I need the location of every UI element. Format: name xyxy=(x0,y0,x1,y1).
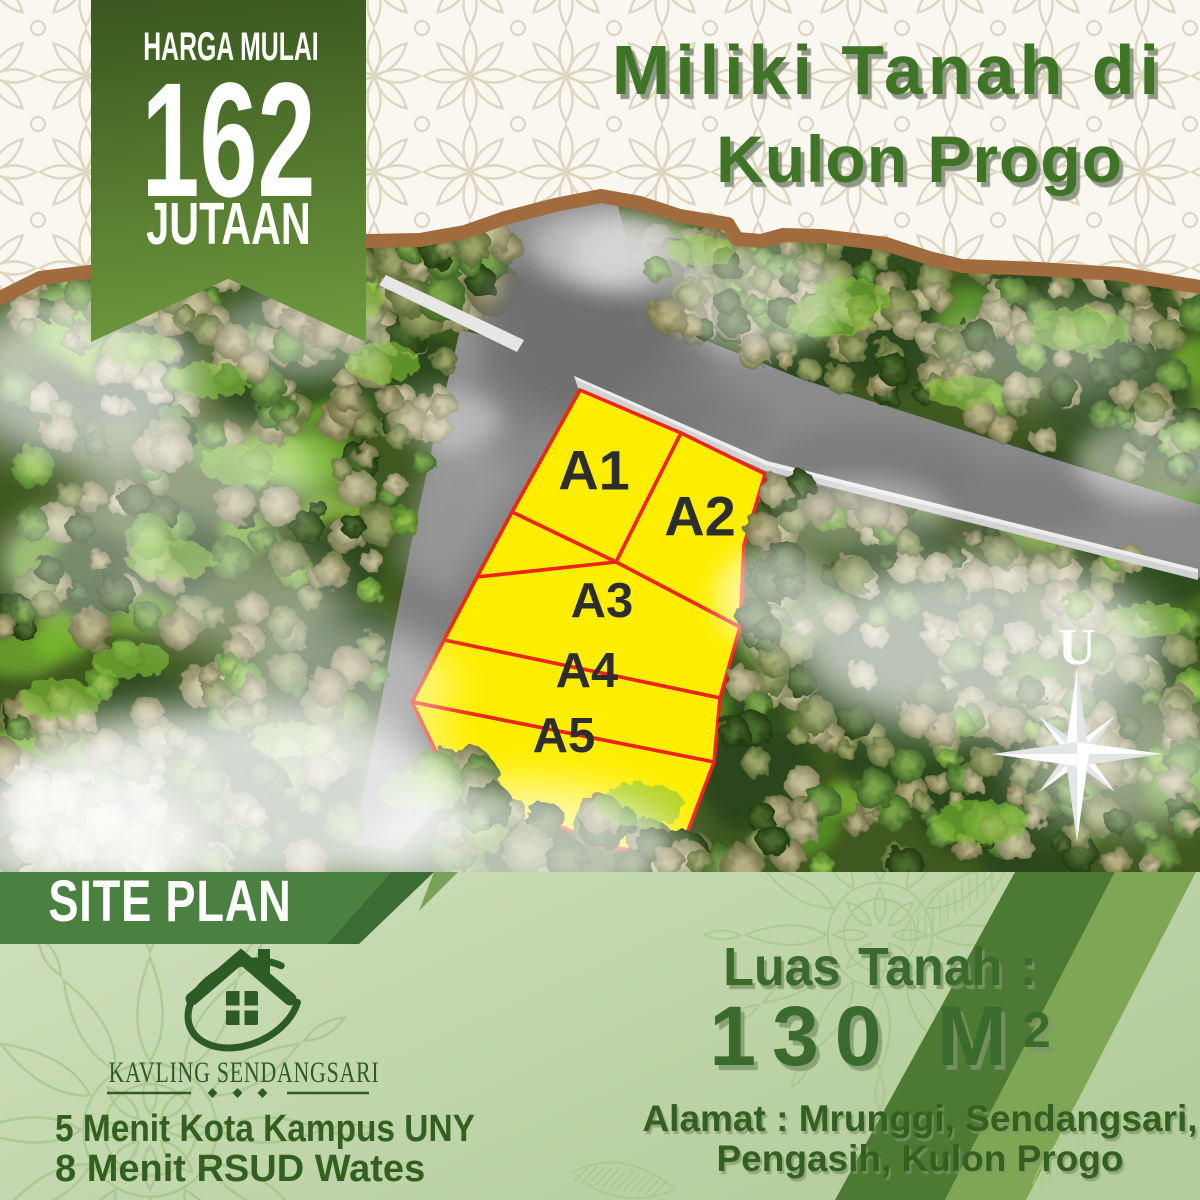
svg-text:A1: A1 xyxy=(558,439,630,502)
svg-text:U: U xyxy=(1058,619,1096,676)
svg-text:A4: A4 xyxy=(556,644,619,698)
svg-text:A2: A2 xyxy=(664,485,736,548)
svg-text:A3: A3 xyxy=(571,574,634,628)
svg-text:A5: A5 xyxy=(533,709,596,763)
